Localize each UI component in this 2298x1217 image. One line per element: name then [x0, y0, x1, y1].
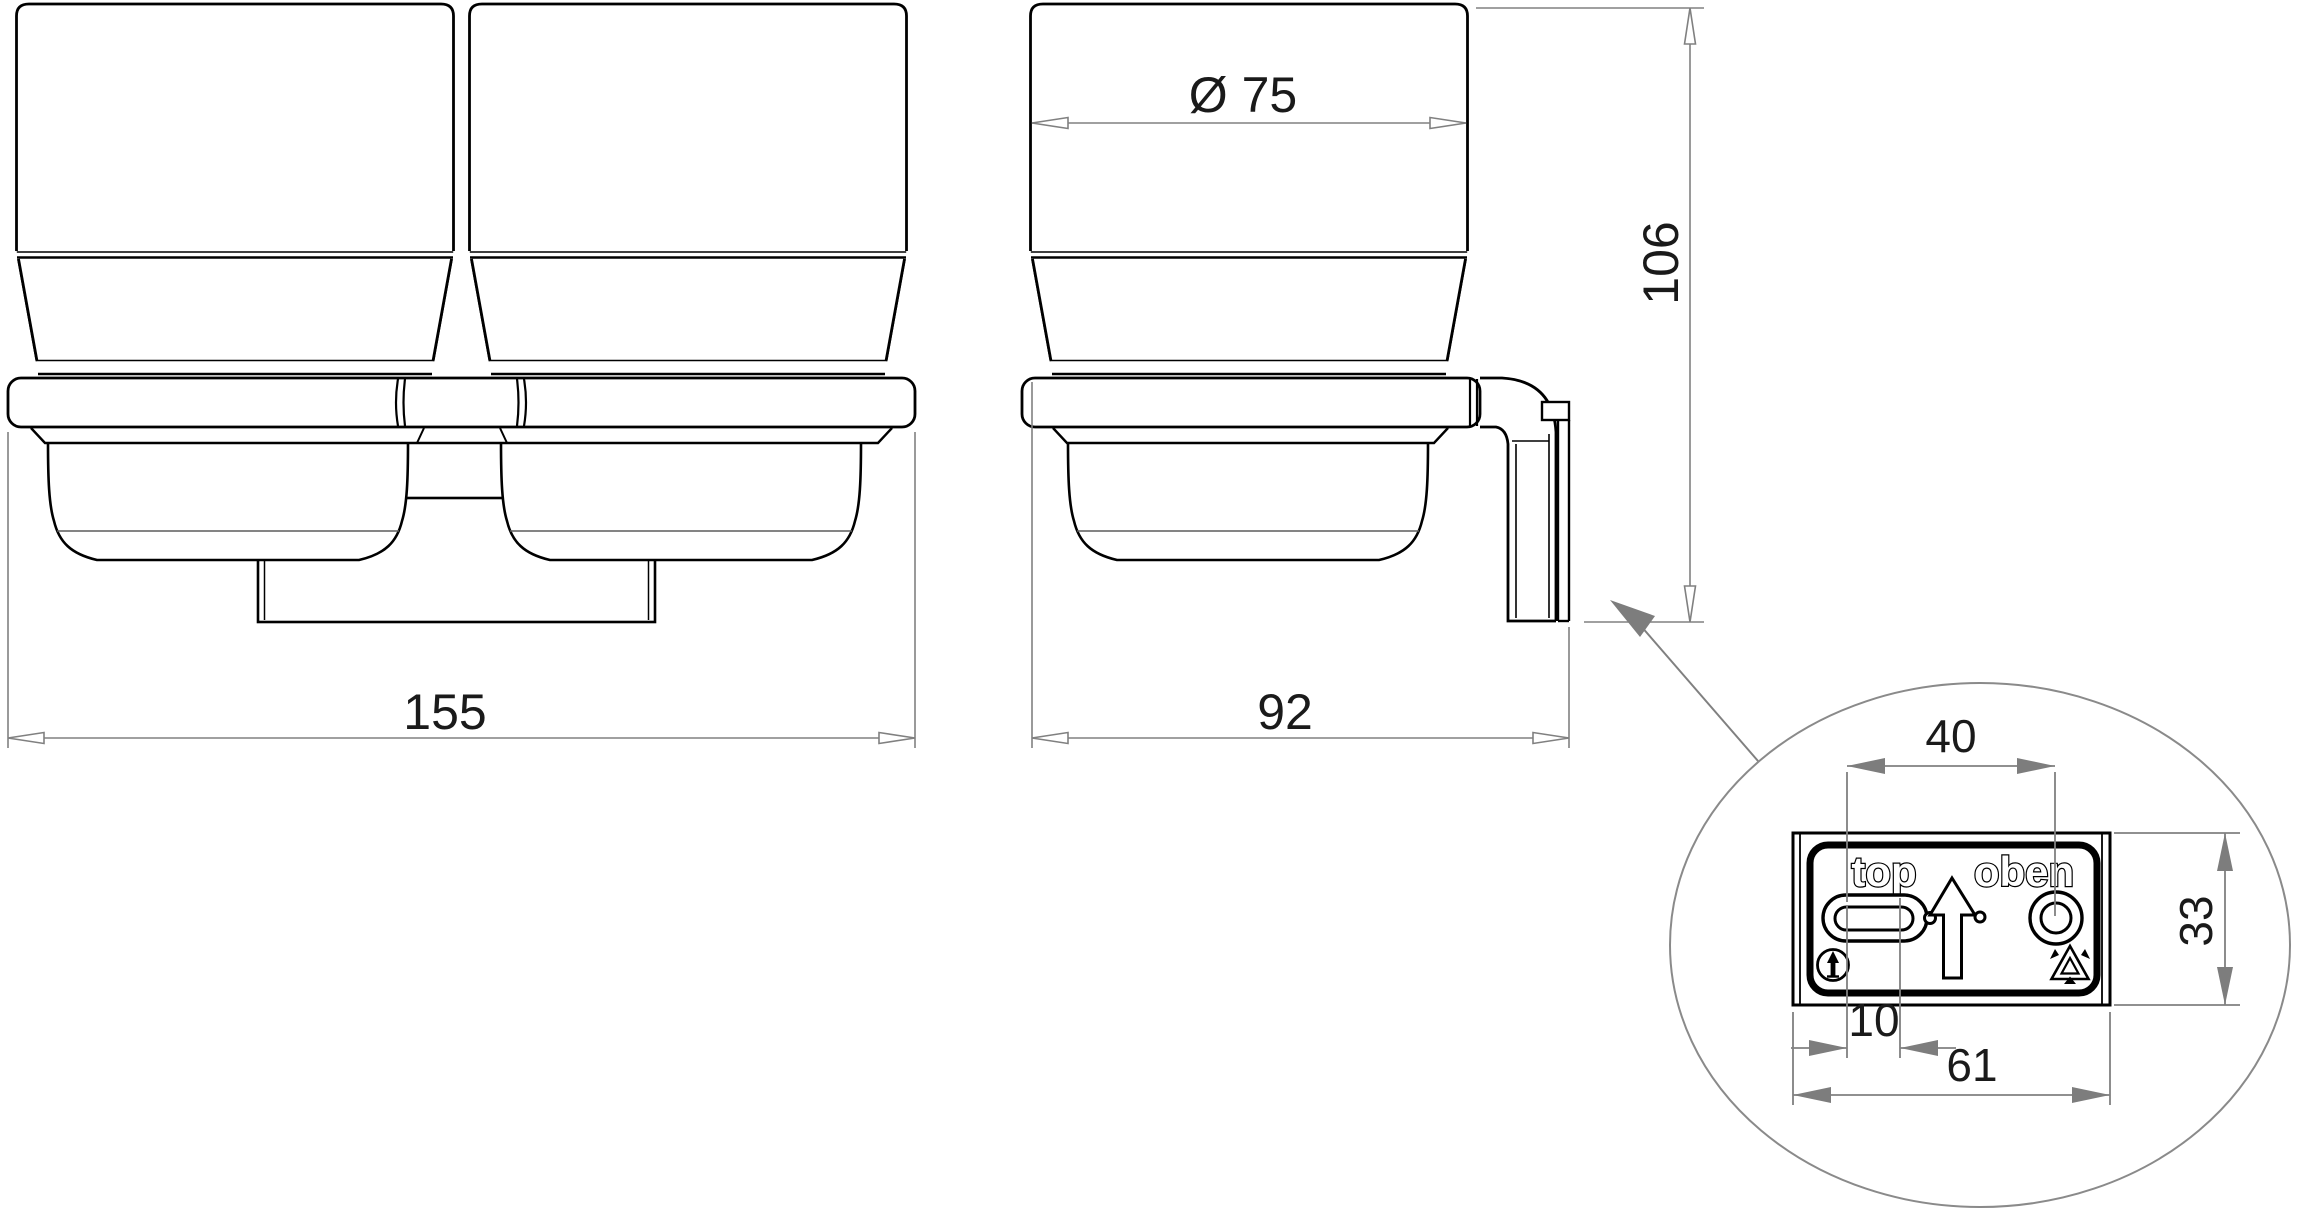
dim-92-label: 92	[1257, 684, 1313, 740]
dim-61-label: 61	[1946, 1039, 1997, 1091]
dim-106: 106	[1476, 8, 1704, 622]
detail-view: top oben	[1670, 683, 2290, 1207]
side-view: Ø 75 92 106	[1022, 4, 1758, 761]
marking-top-label: top	[1851, 848, 1916, 895]
dim-92: 92	[1032, 382, 1569, 748]
side-wall-bracket	[1480, 378, 1569, 621]
side-collar	[1053, 428, 1448, 443]
front-right-glass-bottom	[501, 443, 861, 560]
dim-10-label: 10	[1848, 994, 1899, 1046]
circled-up-arrow-icon	[1818, 950, 1849, 981]
side-cup	[1031, 4, 1468, 374]
marking-oben-label: oben	[1974, 848, 2074, 895]
dim-33-label: 33	[2170, 895, 2222, 946]
front-right-cup	[470, 4, 907, 374]
dim-40-label: 40	[1925, 710, 1976, 762]
dim-155-label: 155	[403, 684, 486, 740]
side-glass-bottom	[1068, 443, 1428, 560]
mounting-hole	[2030, 892, 2082, 944]
dim-106-label: 106	[1633, 221, 1689, 304]
drawing-canvas: 155	[0, 0, 2298, 1217]
dim-diameter-label: Ø 75	[1189, 67, 1297, 123]
front-left-glass-bottom	[48, 443, 408, 560]
leader-arrow	[1610, 600, 1655, 637]
side-holder-ring	[1022, 378, 1480, 427]
technical-drawing: 155	[0, 0, 2298, 1217]
front-holder-ring	[8, 378, 915, 427]
front-left-cup	[17, 4, 454, 374]
mounting-slot	[1823, 895, 1936, 941]
front-collar	[31, 428, 892, 443]
detail-leader	[1610, 600, 1758, 761]
front-view: 155	[8, 4, 915, 748]
